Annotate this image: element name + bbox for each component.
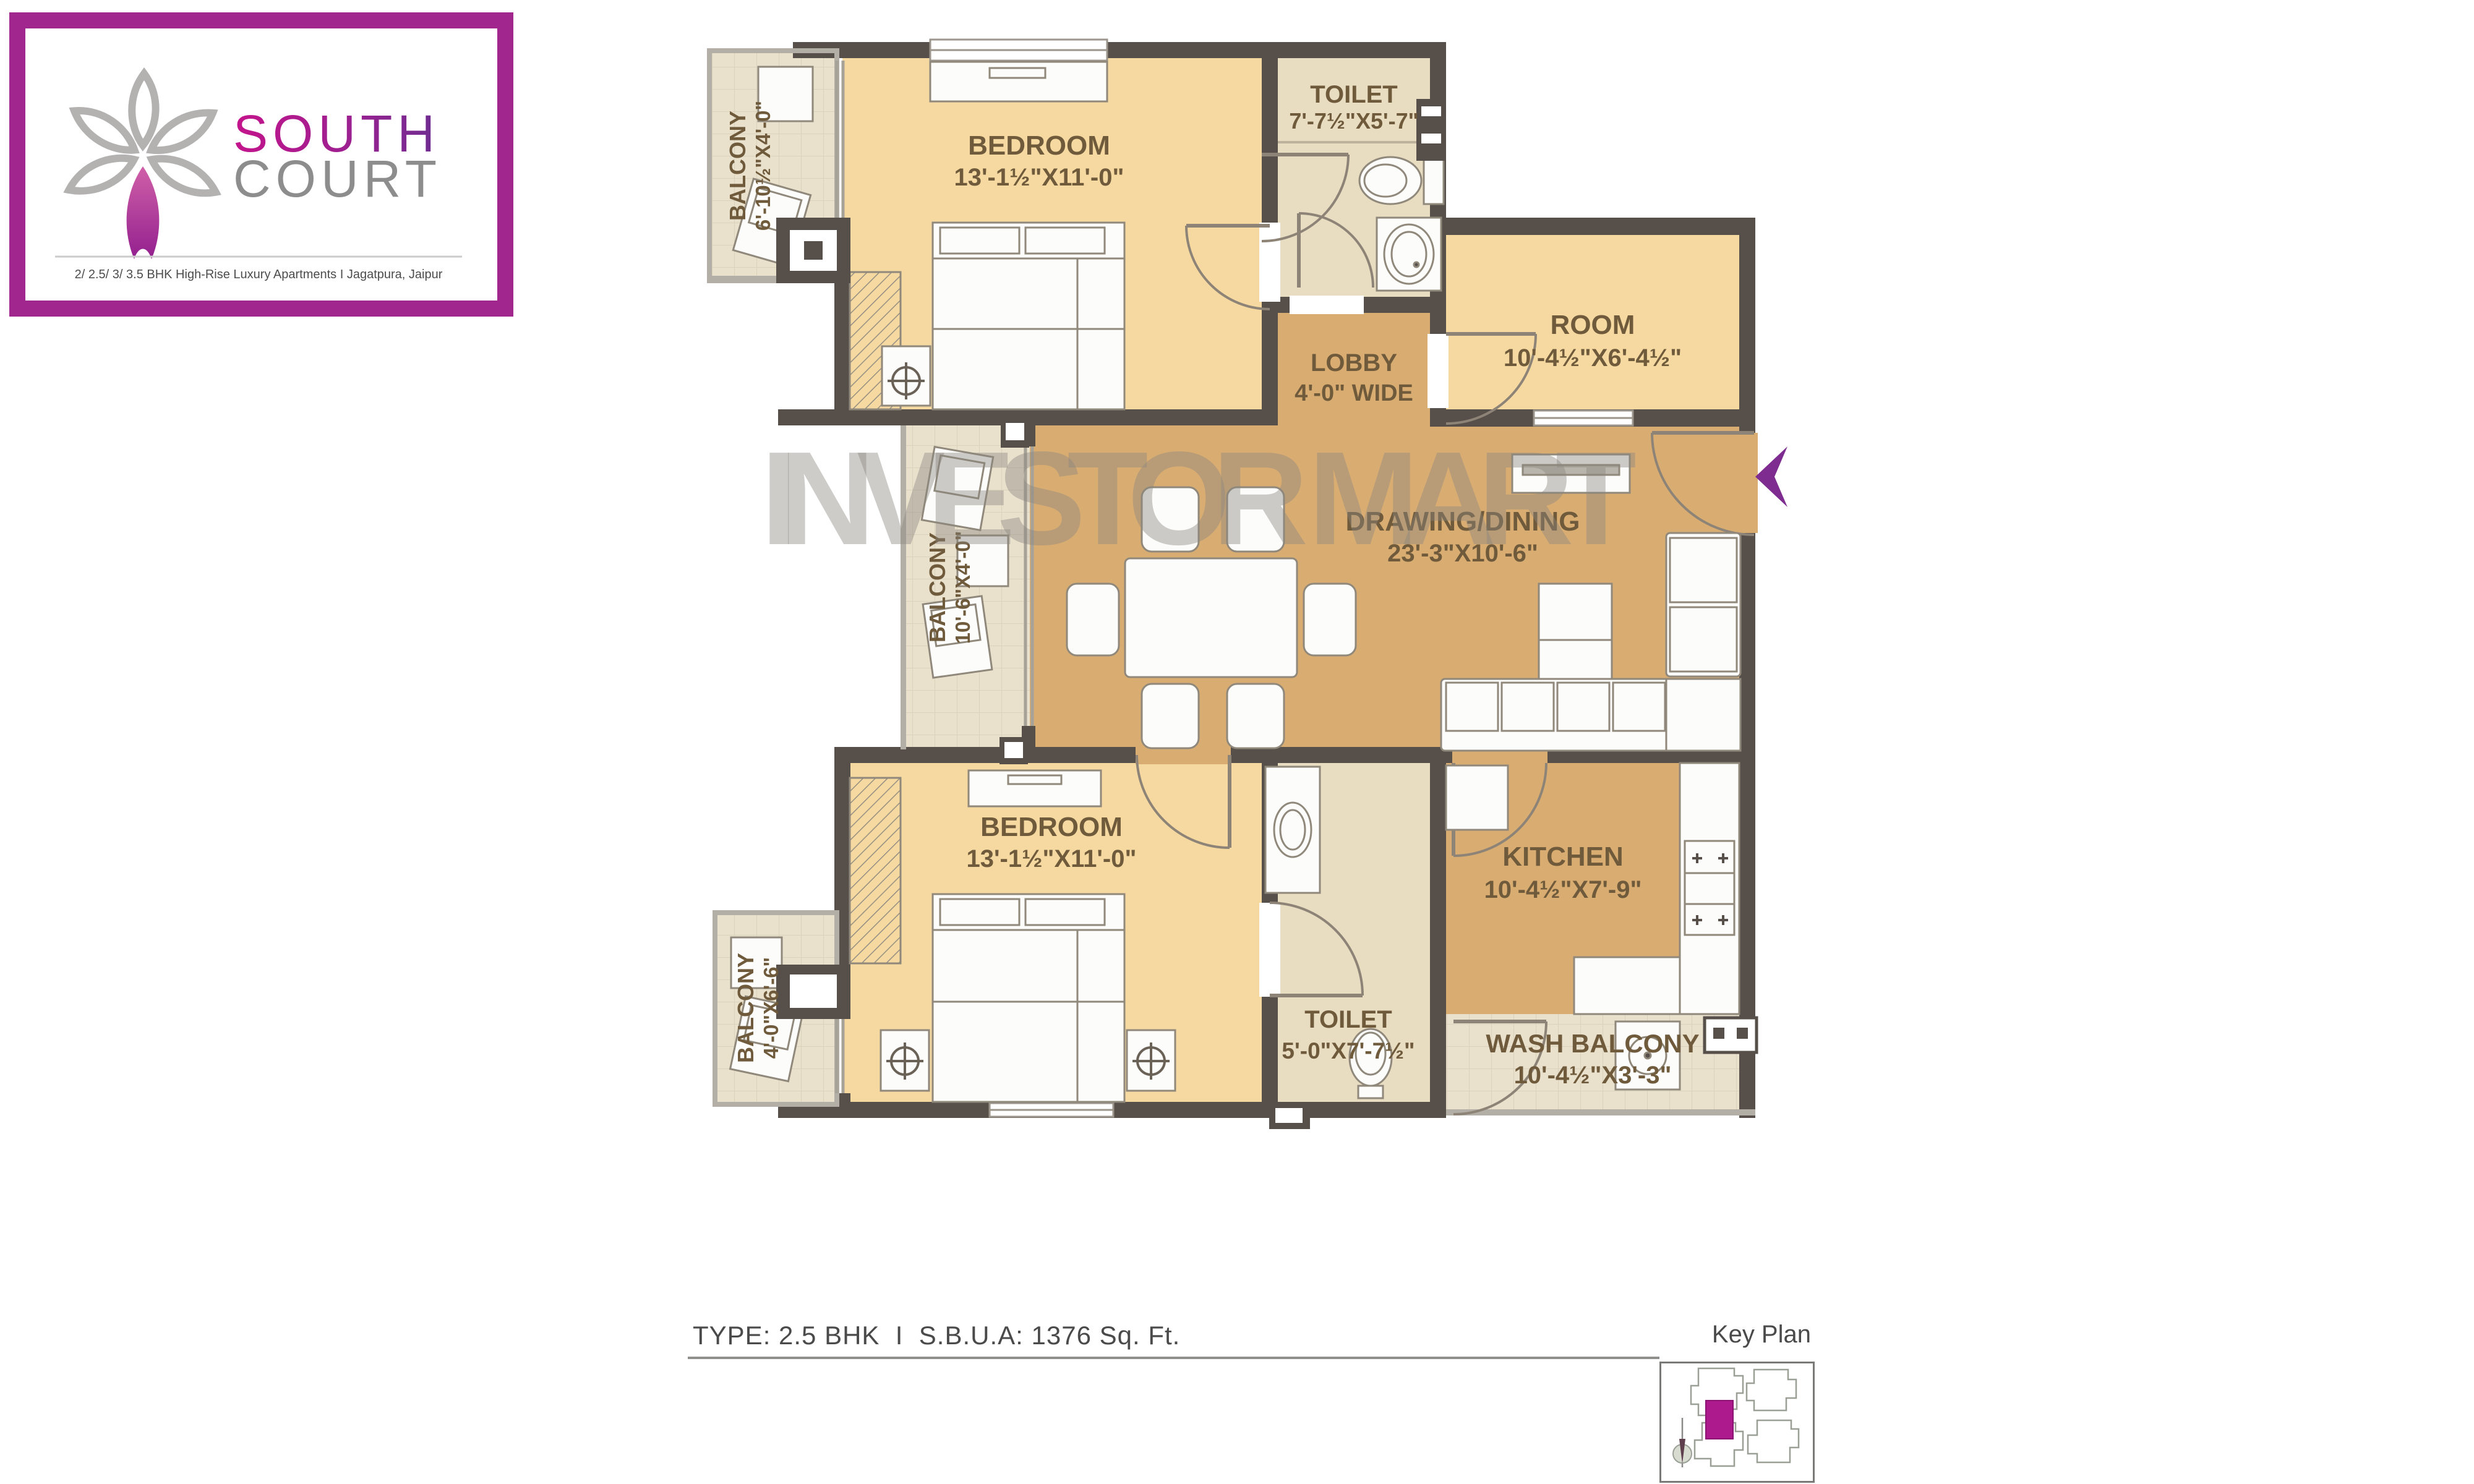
room-dim: 5'-0"X7'-7½": [1282, 1038, 1415, 1064]
room-name: ROOM: [1551, 310, 1635, 340]
dresser-bedroom-bottom: [969, 770, 1101, 806]
room-dim: 4'-0" WIDE: [1295, 380, 1413, 406]
shaft-box: [999, 737, 1028, 764]
room-name: BEDROOM: [980, 812, 1123, 842]
stove: [1685, 841, 1734, 935]
footer-divider: [688, 1357, 1659, 1359]
room-name: TOILET: [1310, 81, 1397, 108]
shaft-box: [776, 218, 850, 283]
label-balcony-bottom-left: BALCONY 4'-0"X6'-6": [733, 953, 782, 1063]
logo-art: SOUTH COURT 2/ 2.5/ 3/ 3.5 BHK High-Rise…: [25, 28, 497, 301]
room-dim: 10'-4½"X3'-3": [1514, 1062, 1672, 1089]
room-name: TOILET: [1304, 1006, 1392, 1033]
bed-bedroom-top: [933, 223, 1124, 409]
wall-bedroom-top-left: [834, 281, 850, 425]
shaft-box: [776, 965, 850, 1019]
room-dim: 13'-1½"X11'-0": [954, 164, 1124, 191]
flower-logo-icon: [64, 74, 221, 259]
wall-top: [793, 42, 1446, 58]
highlighted-unit: [1706, 1401, 1733, 1439]
shaft-box: [1269, 1103, 1310, 1129]
wall-toilet-bottom-right: [1430, 763, 1446, 1111]
label-balcony-top-left: BALCONY 6'-10½"X4'-0": [725, 101, 774, 231]
dresser-bedroom-top: [930, 62, 1107, 101]
toilet-top-divider: [1278, 141, 1430, 143]
room-dim: 13'-1½"X11'-0": [967, 845, 1137, 872]
room-name: BEDROOM: [968, 130, 1110, 161]
room-name: WASH BALCONY: [1486, 1029, 1699, 1058]
north-compass-icon: [1673, 1418, 1692, 1467]
key-plan-label: Key Plan: [1659, 1321, 1811, 1349]
logo-box: SOUTH COURT 2/ 2.5/ 3/ 3.5 BHK High-Rise…: [9, 12, 513, 317]
key-plan-map: [1661, 1363, 1813, 1481]
key-plan: [1659, 1362, 1815, 1483]
room-dim: 10'-4½"X7'-9": [1484, 876, 1642, 903]
logo-tagline: 2/ 2.5/ 3/ 3.5 BHK High-Rise Luxury Apar…: [75, 268, 443, 281]
room-dim: 6'-10½"X4'-0": [751, 101, 774, 231]
sofa-right: [1666, 533, 1740, 751]
shaft-box: [1416, 99, 1446, 161]
room-name: LOBBY: [1311, 349, 1397, 377]
room-dim: 4'-0"X6'-6": [760, 957, 782, 1059]
purple-petal: [127, 166, 160, 259]
plan-type-info: TYPE: 2.5 BHK I S.B.U.A: 1376 Sq. Ft.: [693, 1321, 1180, 1350]
brochure-page: BALCONY 6'-10½"X4'-0" BEDROOM 13'-1½"X11…: [0, 0, 2474, 1484]
watermark-text: INVESTOR MART: [761, 424, 1639, 573]
room-name: BALCONY: [725, 111, 750, 221]
window-bedroom-bottom: [990, 1103, 1113, 1117]
room-dim: 7'-7½"X5'-7": [1289, 108, 1418, 134]
wash-balcony-bottom-wall: [1446, 1109, 1755, 1115]
window-bedroom-top: [930, 40, 1107, 61]
bed-bedroom-bottom: [933, 894, 1124, 1102]
entry-arrow-icon: [1755, 446, 1787, 507]
wall-outer-right-kitchen: [1739, 749, 1755, 1118]
wall-room-top: [1430, 218, 1755, 235]
room-name: BALCONY: [733, 953, 758, 1063]
wardrobe-bedroom-bottom: [850, 778, 901, 963]
brand-name-line2: COURT: [233, 150, 442, 208]
room-name: KITCHEN: [1502, 842, 1624, 872]
wall-outer-right-room: [1739, 218, 1755, 427]
sofa-long: [1441, 679, 1671, 751]
room-dim: 10'-4½"X6'-4½": [1504, 344, 1682, 372]
shaft-box: [1705, 1018, 1757, 1052]
